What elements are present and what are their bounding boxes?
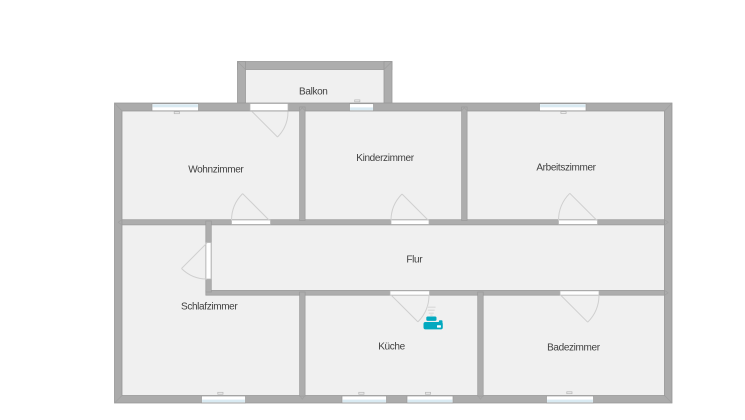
svg-text:Flur: Flur xyxy=(406,254,423,265)
svg-text:Balkon: Balkon xyxy=(299,87,327,98)
svg-text:Arbeitszimmer: Arbeitszimmer xyxy=(536,162,596,173)
svg-text:Wohnzimmer: Wohnzimmer xyxy=(188,164,244,175)
svg-text:Schlafzimmer: Schlafzimmer xyxy=(181,301,238,312)
svg-text:Küche: Küche xyxy=(378,342,405,353)
svg-text:Kinderzimmer: Kinderzimmer xyxy=(356,153,414,164)
svg-text:Badezimmer: Badezimmer xyxy=(547,342,601,353)
